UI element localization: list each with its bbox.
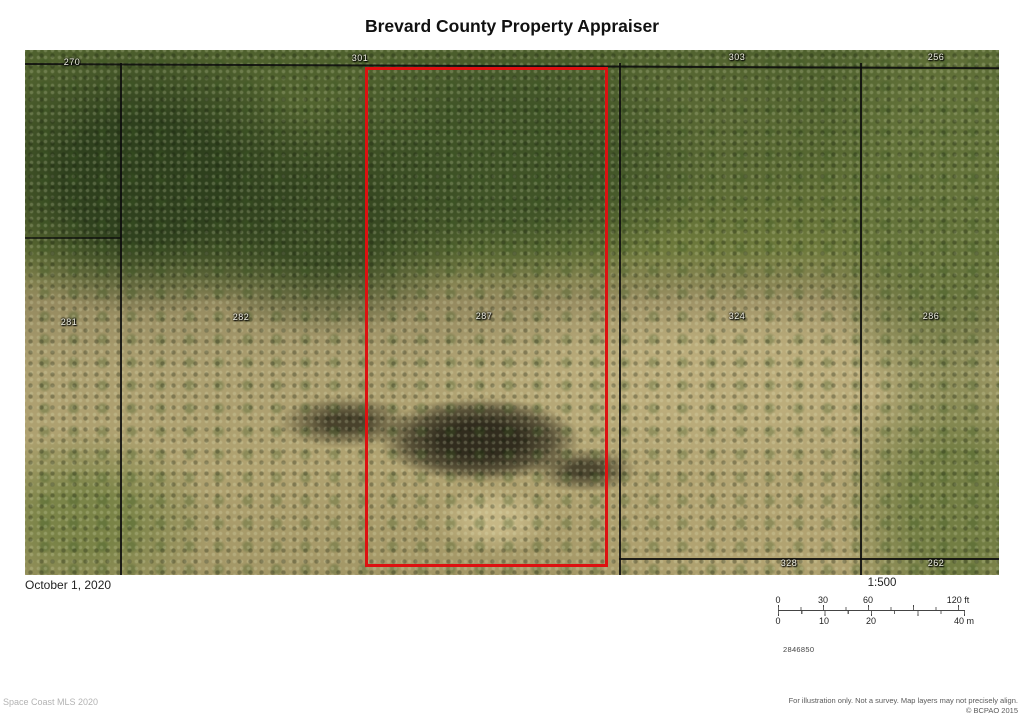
parcel-label: 281 (61, 317, 78, 327)
scalebar-m-label: 20 (866, 616, 876, 626)
disclaimer: For illustration only. Not a survey. Map… (789, 696, 1018, 715)
aerial-map: 270 301 303 256 281 282 287 324 286 328 … (25, 50, 999, 575)
parcel-label: 324 (729, 311, 746, 321)
scalebar-m-label: 40 m (954, 616, 974, 626)
parcel-boundary-vertical-right (860, 63, 862, 575)
parcel-boundary-vertical-left (120, 63, 122, 575)
scalebar-m-label: 10 (819, 616, 829, 626)
page-title: Brevard County Property Appraiser (0, 16, 1024, 37)
scalebar-ft-label: 60 (863, 595, 873, 605)
scalebar-ticks-ft-minor (778, 607, 960, 610)
disclaimer-line2: © BCPAO 2015 (789, 706, 1018, 716)
parcel-boundary-vertical-center (619, 63, 621, 575)
scalebar-m-label: 0 (775, 616, 780, 626)
disclaimer-line1: For illustration only. Not a survey. Map… (789, 696, 1018, 706)
parcel-boundary-left-horizontal (25, 237, 121, 239)
parcel-label: 286 (923, 311, 940, 321)
scale-bar: 0 30 60 120 ft 0 10 20 40 m (776, 595, 988, 629)
scalebar-ticks-m-minor (778, 611, 966, 614)
parcel-label: 287 (476, 311, 493, 321)
scalebar-ft-label: 120 ft (947, 595, 970, 605)
page: Brevard County Property Appraiser 270 30… (0, 0, 1024, 725)
scalebar-ft-label: 30 (818, 595, 828, 605)
parcel-label: 303 (729, 52, 746, 62)
scale-ratio: 1:500 (856, 577, 908, 589)
parcel-label: 270 (64, 57, 81, 67)
parcel-label: 282 (233, 312, 250, 322)
scalebar-ft-label: 0 (775, 595, 780, 605)
parcel-label: 262 (928, 558, 945, 568)
map-number: 2846850 (783, 645, 814, 654)
parcel-label: 328 (781, 558, 798, 568)
attribution: Space Coast MLS 2020 (3, 697, 98, 707)
parcel-label: 256 (928, 52, 945, 62)
parcel-label: 301 (352, 53, 369, 63)
map-date: October 1, 2020 (25, 578, 111, 592)
